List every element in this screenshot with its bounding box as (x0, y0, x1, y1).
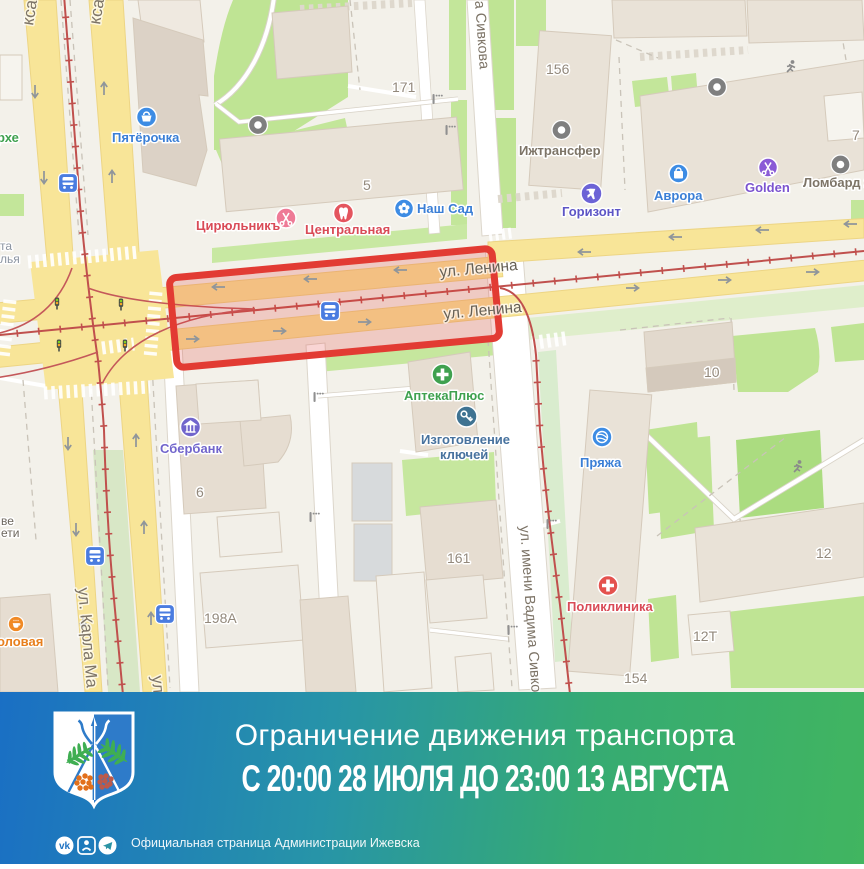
svg-text:Ломбард 2: Ломбард 2 (803, 175, 864, 190)
svg-text:Ижтрансфер: Ижтрансфер (519, 143, 601, 158)
svg-text:Аврора: Аврора (654, 188, 703, 203)
svg-text:Горизонт: Горизонт (562, 204, 621, 219)
svg-text:Golden: Golden (745, 180, 790, 195)
svg-text:5: 5 (363, 177, 371, 193)
svg-text:Поликлиника: Поликлиника (567, 599, 653, 614)
svg-text:Наш Сад: Наш Сад (417, 201, 474, 216)
svg-text:vk: vk (59, 841, 71, 852)
svg-text:171: 171 (392, 79, 416, 95)
svg-text:7: 7 (852, 127, 860, 143)
svg-text:ул: ул (148, 675, 167, 692)
svg-text:156: 156 (546, 61, 570, 77)
svg-text:Сбербанк: Сбербанк (160, 441, 223, 456)
svg-text:рхе: рхе (0, 130, 19, 145)
svg-text:12: 12 (816, 545, 832, 561)
svg-text:12Т: 12Т (693, 628, 718, 644)
svg-text:Изготовление: Изготовление (421, 432, 510, 447)
svg-text:лья: лья (0, 252, 20, 266)
svg-text:Пряжа: Пряжа (580, 455, 622, 470)
svg-text:ключей: ключей (440, 447, 488, 462)
svg-text:оловая: оловая (0, 634, 43, 649)
svg-text:161: 161 (447, 550, 471, 566)
svg-text:154: 154 (624, 670, 648, 686)
svg-text:Центральная: Центральная (305, 222, 390, 237)
svg-text:198А: 198А (204, 610, 237, 626)
svg-text:ети: ети (1, 526, 19, 540)
svg-text:та: та (0, 239, 12, 253)
svg-text:Пятёрочка: Пятёрочка (112, 130, 180, 145)
svg-text:10: 10 (704, 364, 720, 380)
svg-text:6: 6 (196, 484, 204, 500)
svg-text:Цирюльникъ: Цирюльникъ (196, 218, 280, 233)
svg-text:АптекаПлюс: АптекаПлюс (404, 388, 484, 403)
